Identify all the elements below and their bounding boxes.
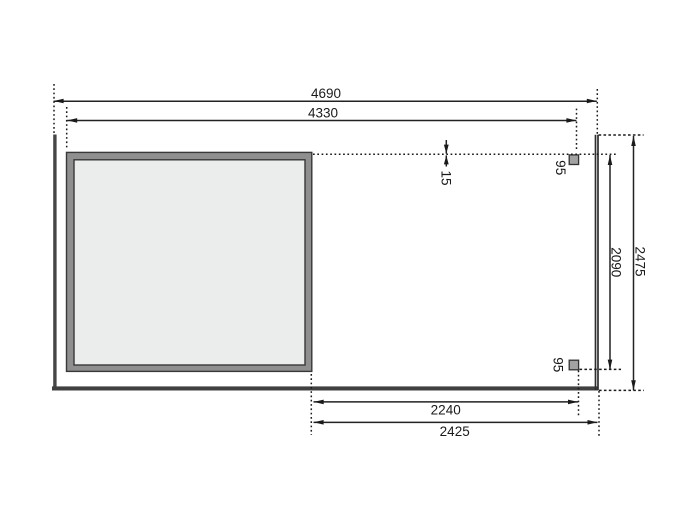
svg-text:2425: 2425 xyxy=(440,424,470,439)
svg-text:2090: 2090 xyxy=(609,247,624,277)
svg-text:4330: 4330 xyxy=(308,105,338,120)
svg-text:95: 95 xyxy=(553,160,568,175)
svg-text:95: 95 xyxy=(551,357,566,372)
svg-text:2240: 2240 xyxy=(431,403,461,418)
svg-text:15: 15 xyxy=(438,170,453,185)
svg-text:4690: 4690 xyxy=(311,86,341,101)
svg-text:2475: 2475 xyxy=(633,246,648,276)
